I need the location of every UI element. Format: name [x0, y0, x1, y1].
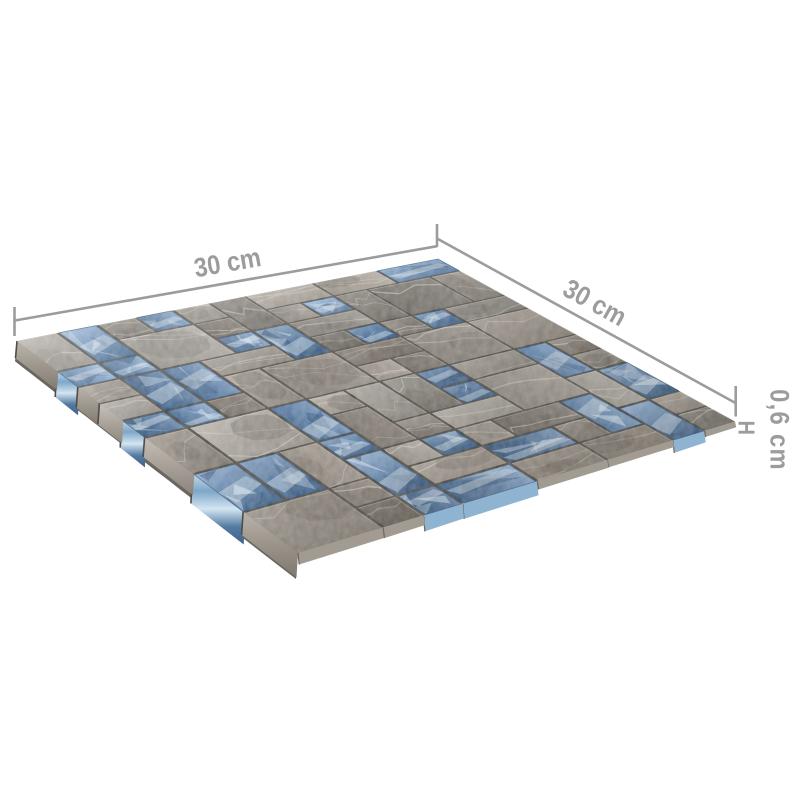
svg-text:H: H [733, 420, 760, 434]
svg-text:0,6 cm: 0,6 cm [764, 389, 794, 471]
